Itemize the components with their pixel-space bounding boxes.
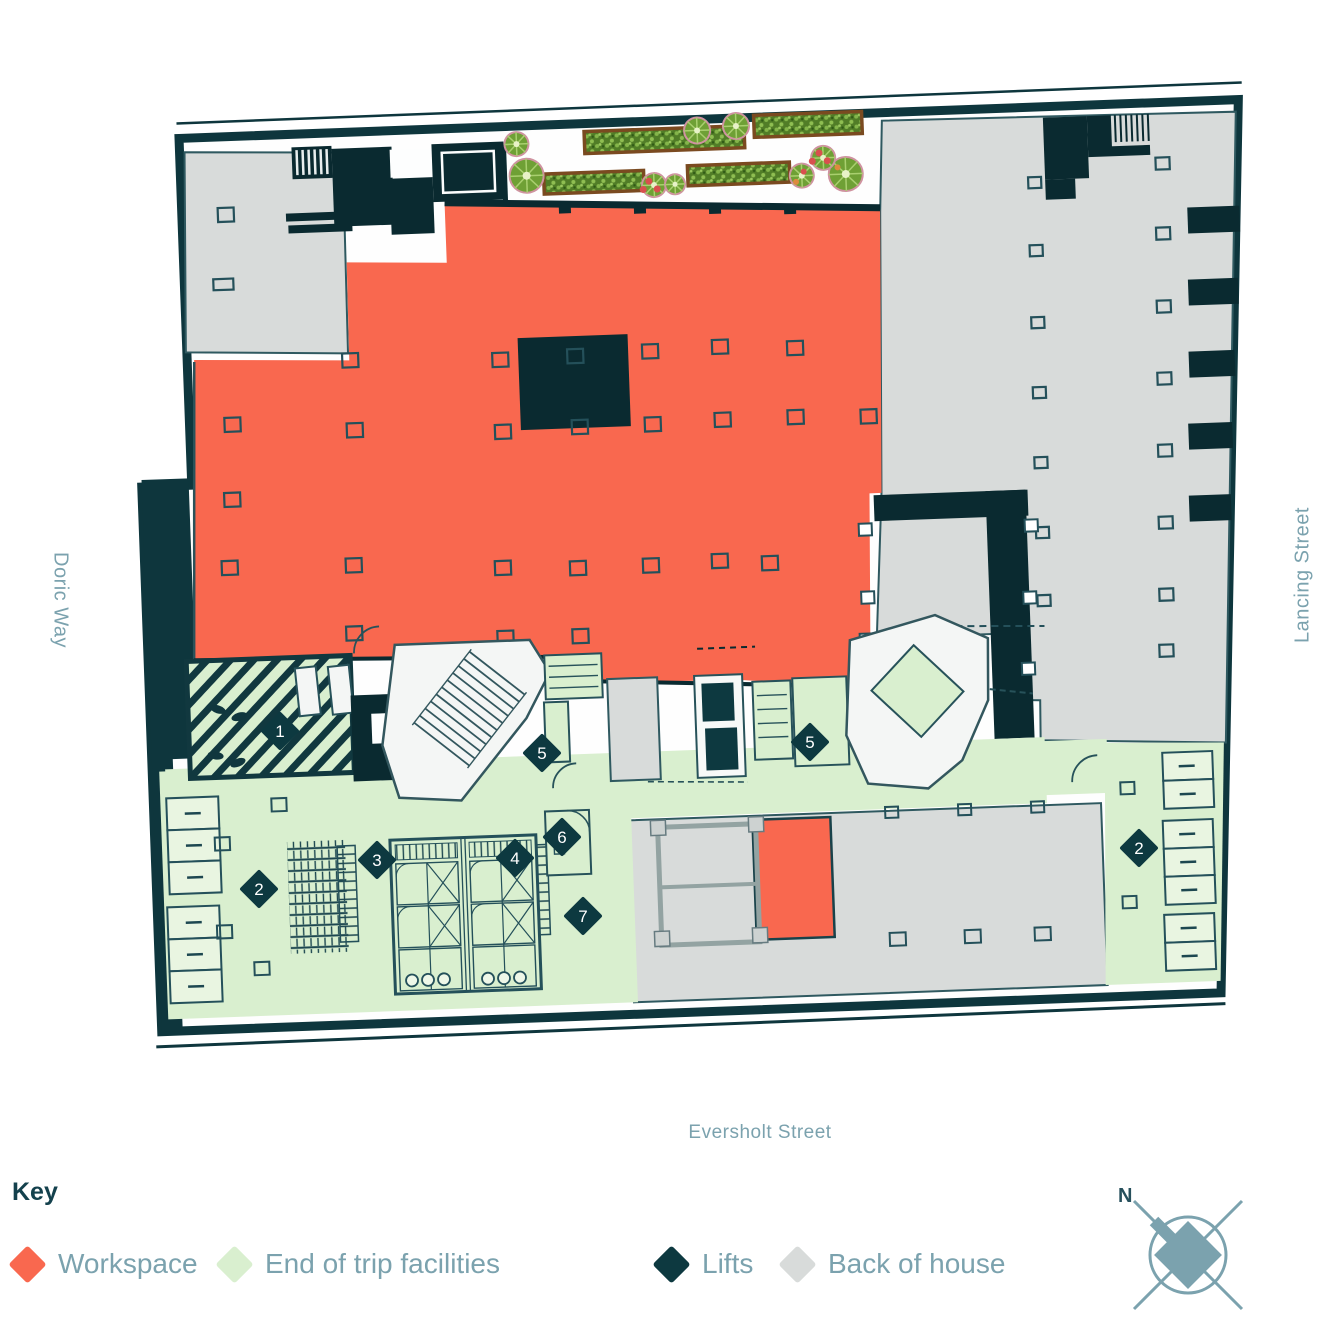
north-compass-icon: N: [1108, 1183, 1268, 1316]
key-item-back-of-house: Back of house: [784, 1246, 1005, 1282]
key-item-label: Workspace: [58, 1248, 198, 1280]
lift-shaft: [705, 727, 739, 770]
key-item-workspace: Workspace: [14, 1246, 198, 1282]
workspace-small-room: [752, 817, 834, 940]
street-label-lancing-street: Lancing Street: [1292, 507, 1315, 643]
key-item-lifts: Lifts: [658, 1246, 753, 1282]
plan-marker-5-right: 5: [792, 724, 828, 760]
key-item-label: Lifts: [702, 1248, 753, 1280]
lift-shaft: [701, 682, 734, 721]
plan-marker-6: 6: [544, 819, 580, 855]
lifts-diamond-icon: [652, 1245, 690, 1283]
key-title: Key: [12, 1178, 58, 1207]
plan-marker-5-left: 5: [524, 735, 560, 771]
north-label: N: [1118, 1185, 1132, 1208]
plan-marker-7: 7: [565, 898, 601, 934]
plan-marker-4: 4: [497, 840, 533, 876]
key-item-label: End of trip facilities: [265, 1248, 500, 1280]
street-label-doric-way: Doric Way: [49, 552, 72, 648]
back-of-house-diamond-icon: [778, 1245, 816, 1283]
workspace-diamond-icon: [8, 1245, 46, 1283]
plan-marker-2-left: 2: [241, 871, 277, 907]
key-item-end-of-trip: End of trip facilities: [221, 1246, 500, 1282]
street-label-eversholt-street: Eversholt Street: [688, 1122, 831, 1144]
plan-marker-1: 1: [262, 713, 298, 749]
key-item-label: Back of house: [828, 1248, 1005, 1280]
floor-plan-drawing: [0, 0, 1330, 1160]
end-of-trip-diamond-icon: [215, 1245, 253, 1283]
plan-marker-2-right: 2: [1121, 830, 1157, 866]
floor-plan: [0, 0, 1330, 1160]
plan-marker-3: 3: [359, 842, 395, 878]
